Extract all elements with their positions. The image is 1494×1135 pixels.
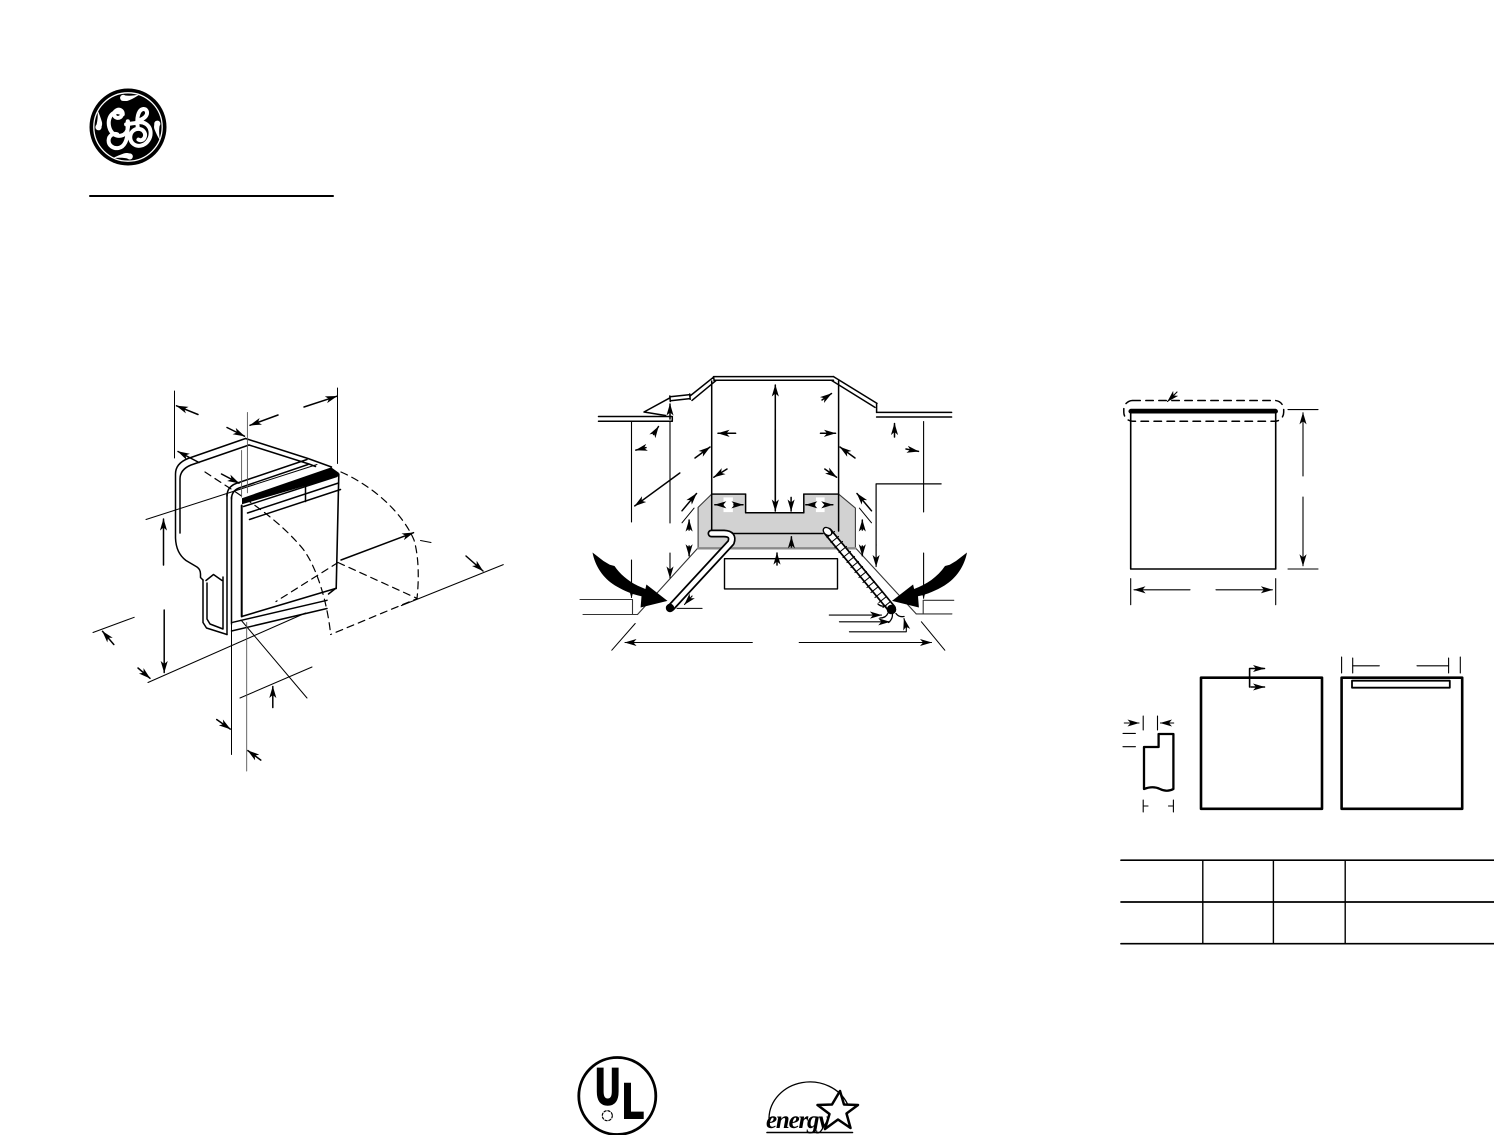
- svg-text:energy: energy: [766, 1107, 830, 1134]
